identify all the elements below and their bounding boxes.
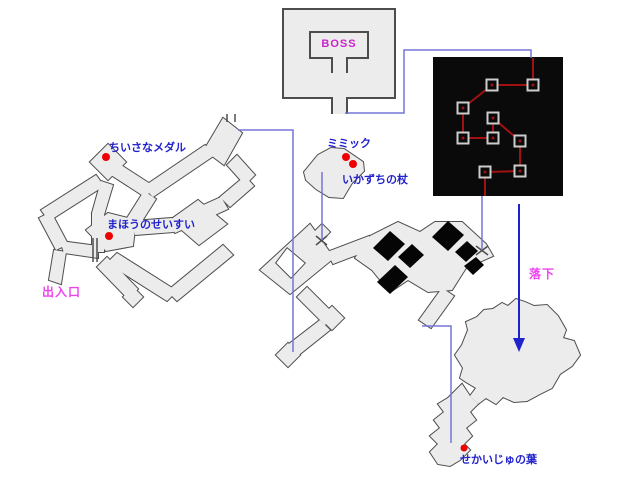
label-leaf: せかいじゅの葉 xyxy=(460,452,538,466)
node-center-dot xyxy=(492,117,495,120)
node-center-dot xyxy=(491,84,494,87)
node-center-dot xyxy=(462,107,465,110)
label-entrance: 出入口 xyxy=(42,284,81,299)
item-dot-holy-water xyxy=(105,232,113,240)
left-maze-corridor xyxy=(49,250,66,284)
node-center-dot xyxy=(532,84,535,87)
node-center-dot xyxy=(462,137,465,140)
label-staff: いかずちの杖 xyxy=(342,172,409,186)
left-maze-corridor xyxy=(92,213,104,252)
label-seisui: まほうのせいすい xyxy=(107,218,195,231)
connector-leftmaze-to-center xyxy=(238,130,293,352)
left-maze-corridor xyxy=(167,245,233,301)
item-dot-small-medal xyxy=(102,153,110,161)
label-mimic: ミミック xyxy=(327,137,371,150)
item-dot-yggdrasil-leaf xyxy=(461,445,468,452)
dark-room xyxy=(433,57,563,196)
label-fall: 落下 xyxy=(529,266,555,281)
bottom-rooms-corridor xyxy=(455,299,580,404)
item-dot-mimic-chest xyxy=(342,153,350,161)
dungeon-map-image: BOSSちいさなメダルまほうのせいすい出入口ミミックいかずちの杖落下せかいじゅの… xyxy=(0,0,640,478)
node-center-dot xyxy=(519,170,522,173)
node-center-dot xyxy=(484,171,487,174)
dungeon-map-svg: BOSSちいさなメダルまほうのせいすい出入口ミミックいかずちの杖落下せかいじゅの… xyxy=(0,0,640,478)
label-medal: ちいさなメダル xyxy=(109,140,186,154)
node-center-dot xyxy=(492,137,495,140)
node-center-dot xyxy=(519,140,522,143)
label-boss: BOSS xyxy=(321,38,356,50)
item-dot-thunder-staff xyxy=(349,160,357,168)
